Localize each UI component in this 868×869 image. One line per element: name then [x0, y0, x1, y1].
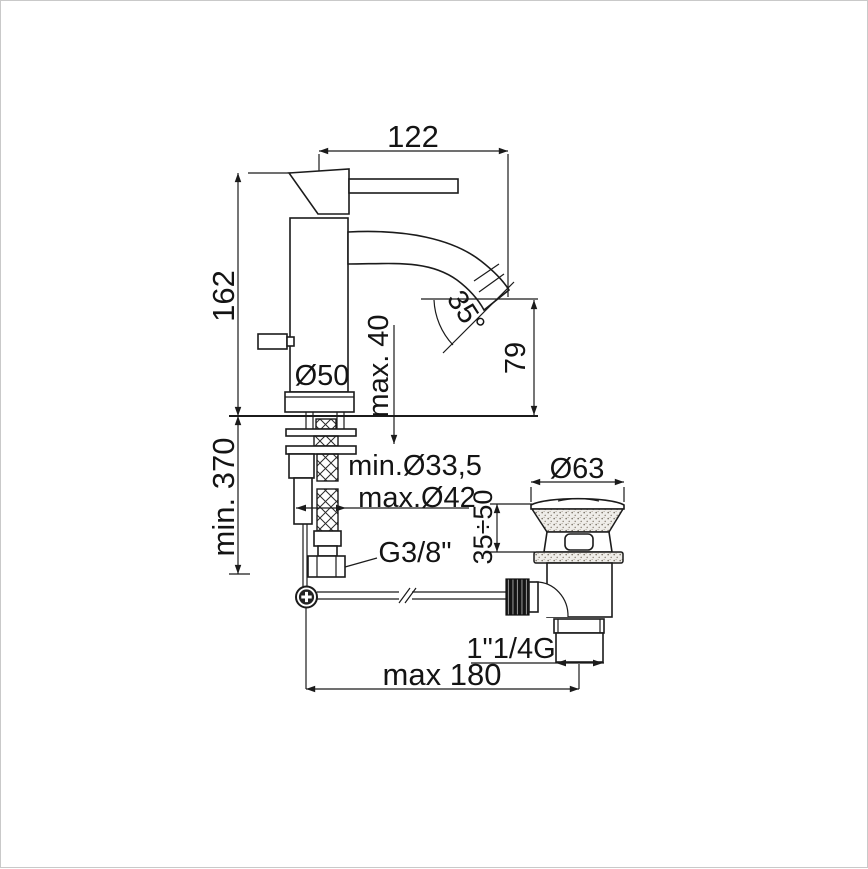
- mounting-washer-top: [286, 429, 356, 436]
- dim-label-supply-thread: G3/8": [378, 537, 451, 569]
- flex-hose-lower: [317, 489, 338, 531]
- dim-label-base-diameter: Ø50: [295, 360, 350, 392]
- drain-cone: [532, 509, 623, 532]
- dim-label-waste-cap: Ø63: [550, 453, 605, 485]
- threaded-shank: [316, 419, 336, 429]
- technical-drawing-page: 122 162 min. 370 max. 40 Ø50 35° 79 min.…: [0, 0, 868, 868]
- linkage-rod: [317, 592, 506, 599]
- dim-label-spout-height: 79: [500, 342, 532, 374]
- rod-ball-joint: [296, 587, 317, 608]
- drain-cap: [531, 499, 624, 509]
- drain-overflow-slot: [565, 534, 593, 550]
- dim-label-install-depth: min. 370: [206, 438, 241, 557]
- mounting-washer-bottom: [286, 446, 356, 454]
- flex-hose-upper: [317, 454, 338, 481]
- dim-label-deck-thickness: max. 40: [363, 314, 395, 417]
- pop-up-rod-vertical: [303, 524, 307, 587]
- drain-thread-collar: [554, 619, 604, 633]
- hose-nut-g38: [308, 556, 345, 577]
- mounting-sleeve: [294, 478, 312, 524]
- dim-label-rod-reach: max 180: [383, 657, 502, 692]
- hose-fitting: [314, 531, 341, 546]
- drain-adjuster-ring: [529, 582, 538, 612]
- rod-break-symbol: [399, 588, 416, 603]
- dim-label-hole-min: min.Ø33,5: [348, 450, 482, 482]
- pop-up-knob-stem: [287, 337, 294, 346]
- dim-waste-clamp-range: 35÷50: [468, 490, 535, 565]
- faucet-handle-base: [289, 169, 349, 214]
- drain-tailpiece-thread: [556, 633, 603, 662]
- dim-install-depth: min. 370: [206, 416, 250, 574]
- faucet-lever: [349, 179, 458, 193]
- pop-up-knob: [258, 334, 287, 349]
- faucet-base-plate: [285, 392, 354, 412]
- dim-body-height: 162: [206, 173, 291, 416]
- dim-label-spout-reach: 122: [387, 119, 439, 154]
- dim-deck-thickness: max. 40: [363, 314, 395, 444]
- threaded-shank-2: [314, 436, 338, 446]
- drain-knurled-adjuster: [506, 579, 529, 615]
- dim-supply-thread: G3/8": [345, 537, 452, 569]
- dim-label-hole-max: max.Ø42: [358, 482, 476, 514]
- mounting-nut: [289, 454, 314, 478]
- drain-flange: [534, 552, 623, 563]
- faucet-spout: [348, 231, 509, 310]
- dim-label-body-height: 162: [206, 270, 241, 322]
- dim-label-waste-clamp-range: 35÷50: [468, 490, 498, 565]
- hose-neck: [318, 546, 337, 556]
- technical-drawing-canvas: 122 162 min. 370 max. 40 Ø50 35° 79 min.…: [1, 1, 868, 869]
- dim-waste-cap: Ø63: [531, 453, 624, 502]
